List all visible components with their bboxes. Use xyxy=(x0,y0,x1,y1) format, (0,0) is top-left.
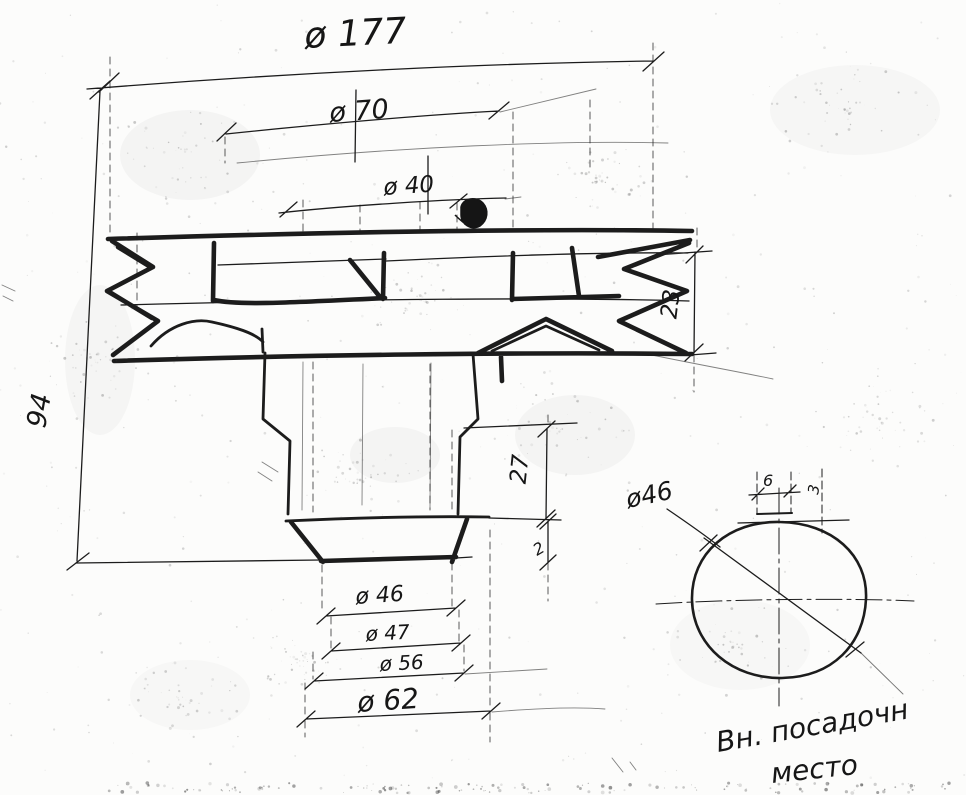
noise-dot xyxy=(725,277,727,279)
noise-dot xyxy=(117,127,119,129)
dim-overall-height: 94 xyxy=(21,391,57,430)
noise-dot xyxy=(303,656,306,659)
noise-dot xyxy=(146,667,147,668)
noise-dot xyxy=(363,787,365,789)
noise-dot xyxy=(819,93,821,95)
noise-dot xyxy=(928,349,930,351)
noise-dot xyxy=(674,397,676,399)
noise-dot xyxy=(580,312,583,315)
noise-dot xyxy=(176,355,179,358)
noise-dot xyxy=(547,787,551,791)
noise-dot xyxy=(133,159,134,160)
noise-dot xyxy=(188,272,190,274)
noise-dot xyxy=(477,82,479,84)
noise-dot xyxy=(922,689,924,691)
noise-dot xyxy=(343,792,344,793)
noise-dot xyxy=(177,178,179,180)
noise-dot xyxy=(932,419,935,422)
noise-dot xyxy=(177,684,179,686)
noise-dot xyxy=(377,197,380,200)
noise-dot xyxy=(144,165,146,167)
noise-dot xyxy=(538,540,540,542)
noise-dot xyxy=(337,466,340,469)
noise-dot xyxy=(725,632,726,633)
noise-dot xyxy=(419,312,422,315)
noise-dot xyxy=(748,662,749,663)
noise-dot xyxy=(247,229,249,231)
noise-dot xyxy=(826,782,830,786)
noise-dot xyxy=(199,112,201,114)
noise-dot xyxy=(835,133,838,136)
noise-dot xyxy=(882,685,884,687)
noise-dot xyxy=(854,74,855,75)
noise-dot xyxy=(338,452,339,453)
noise-dot xyxy=(697,358,698,359)
noise-dot xyxy=(370,485,371,486)
noise-dot xyxy=(826,112,828,114)
noise-dot xyxy=(135,367,137,369)
noise-dot xyxy=(272,191,274,193)
noise-dot xyxy=(294,645,295,646)
noise-dot xyxy=(848,128,851,131)
noise-dot xyxy=(532,403,534,405)
noise-dot xyxy=(186,148,188,150)
noise-dot xyxy=(914,785,915,786)
noise-dot xyxy=(147,760,150,763)
noise-dot xyxy=(565,475,566,476)
noise-dot xyxy=(44,121,46,123)
noise-dot xyxy=(193,789,194,790)
noise-dot xyxy=(185,715,186,716)
noise-dot xyxy=(896,465,899,468)
noise-dot xyxy=(178,690,180,692)
noise-dot xyxy=(917,440,919,442)
noise-dot xyxy=(303,666,304,667)
noise-dot xyxy=(579,787,582,790)
noise-dot xyxy=(882,438,883,439)
noise-dot xyxy=(803,101,805,103)
noise-dot xyxy=(366,765,367,766)
noise-dot xyxy=(234,789,236,791)
noise-dot xyxy=(731,646,734,649)
noise-dot xyxy=(19,384,21,386)
noise-dot xyxy=(300,602,301,603)
noise-dot xyxy=(102,143,103,144)
noise-dot xyxy=(190,112,191,113)
noise-dot xyxy=(820,82,822,84)
noise-dot xyxy=(285,651,287,653)
noise-dot xyxy=(76,417,79,420)
dim-end-dia-1: ø 46 xyxy=(354,582,405,610)
caption-line-1: Вн. посадочн xyxy=(713,693,910,759)
noise-dot xyxy=(95,370,96,371)
noise-dot xyxy=(56,345,58,347)
noise-dot xyxy=(0,102,1,104)
noise-dot xyxy=(230,681,231,682)
paper-smudges xyxy=(65,65,940,730)
noise-dot xyxy=(728,651,730,653)
noise-dot xyxy=(473,788,475,790)
noise-dot xyxy=(741,653,744,656)
noise-dot xyxy=(339,668,341,670)
noise-dot xyxy=(396,792,399,795)
noise-dot xyxy=(933,680,934,681)
noise-dot xyxy=(320,417,321,418)
noise-dot xyxy=(208,711,210,713)
noise-dot xyxy=(382,787,385,790)
noise-dot xyxy=(877,368,879,370)
noise-dot xyxy=(376,323,379,326)
noise-dot xyxy=(364,689,366,691)
noise-dot xyxy=(514,461,516,463)
noise-dot xyxy=(828,651,830,653)
noise-dot xyxy=(56,384,57,385)
noise-dot xyxy=(49,361,50,362)
noise-dot xyxy=(421,275,423,277)
noise-dot xyxy=(760,253,762,255)
noise-dot xyxy=(880,392,881,393)
noise-dot xyxy=(72,367,74,369)
noise-dot xyxy=(502,52,504,54)
noise-dot xyxy=(573,395,576,398)
noise-dot xyxy=(856,784,859,787)
dim-end-dia-4: ø 62 xyxy=(355,682,420,719)
noise-dot xyxy=(513,11,514,12)
noise-dot xyxy=(305,672,307,674)
noise-dot xyxy=(764,657,766,659)
noise-dot xyxy=(885,417,887,419)
noise-dot xyxy=(620,720,622,722)
noise-dot xyxy=(371,790,372,791)
noise-dot xyxy=(591,30,593,32)
noise-dot xyxy=(95,360,96,361)
noise-dot xyxy=(724,788,726,790)
noise-dot xyxy=(88,732,90,734)
noise-dot xyxy=(101,651,104,654)
noise-dot xyxy=(51,466,53,468)
noise-dot xyxy=(454,687,455,688)
noise-dot xyxy=(726,785,728,787)
noise-dot xyxy=(494,438,496,440)
noise-dot xyxy=(917,234,918,235)
noise-dot xyxy=(137,348,140,351)
noise-dot xyxy=(531,424,532,425)
noise-dot xyxy=(370,476,372,478)
noise-dot xyxy=(301,19,303,21)
noise-dot xyxy=(357,471,359,473)
noise-dot xyxy=(165,196,166,197)
noise-dot xyxy=(886,391,887,392)
noise-dot xyxy=(264,432,267,435)
noise-dot xyxy=(304,652,307,655)
noise-dot xyxy=(920,21,922,23)
noise-dot xyxy=(850,124,851,125)
noise-dot xyxy=(209,333,211,335)
noise-dot xyxy=(941,785,943,787)
noise-dot xyxy=(326,358,328,360)
noise-dot xyxy=(428,467,429,468)
noise-dot xyxy=(956,393,957,394)
noise-dot xyxy=(226,456,228,458)
noise-dot xyxy=(725,694,728,697)
noise-dot xyxy=(605,182,606,183)
noise-dot xyxy=(227,482,229,484)
noise-dot xyxy=(85,321,87,323)
noise-dot xyxy=(903,429,905,431)
noise-dot xyxy=(263,786,264,787)
noise-dot xyxy=(892,412,894,414)
noise-dot xyxy=(142,240,144,242)
noise-dot xyxy=(458,431,459,432)
noise-dot xyxy=(682,786,685,789)
noise-dot xyxy=(733,642,734,643)
noise-dot xyxy=(486,12,489,15)
noise-dot xyxy=(185,181,186,182)
noise-dot xyxy=(12,60,14,62)
noise-dot xyxy=(518,427,521,430)
noise-dot xyxy=(929,653,930,654)
noise-dot xyxy=(787,665,789,667)
noise-dot xyxy=(813,782,816,785)
noise-dot xyxy=(389,454,392,457)
noise-dot xyxy=(41,178,42,179)
noise-dot xyxy=(99,612,102,615)
noise-dot xyxy=(950,284,951,285)
noise-dot xyxy=(511,79,513,81)
noise-dot xyxy=(153,148,154,149)
noise-dot xyxy=(528,241,529,242)
noise-dot xyxy=(787,172,789,174)
noise-dot xyxy=(46,486,47,487)
noise-dot xyxy=(823,426,825,428)
noise-dot xyxy=(875,108,876,109)
noise-dot xyxy=(278,683,279,684)
noise-dot xyxy=(70,517,71,518)
noise-dot xyxy=(796,74,798,76)
noise-dot xyxy=(661,713,662,714)
noise-dot xyxy=(28,201,29,202)
noise-dot xyxy=(352,482,354,484)
noise-dot xyxy=(20,415,21,416)
noise-dot xyxy=(924,300,926,302)
noise-dot xyxy=(678,694,680,696)
noise-dot xyxy=(872,460,874,462)
noise-dot xyxy=(778,609,779,610)
noise-dot xyxy=(374,305,375,306)
noise-dot xyxy=(81,138,82,139)
noise-dot xyxy=(415,729,418,732)
noise-dot xyxy=(807,133,809,135)
noise-dot xyxy=(879,430,881,432)
noise-dot xyxy=(599,176,600,177)
noise-dot xyxy=(253,637,255,639)
noise-dot xyxy=(71,594,73,596)
noise-dot xyxy=(234,684,236,686)
noise-dot xyxy=(574,172,577,175)
noise-dot xyxy=(853,403,855,405)
noise-dot xyxy=(531,22,533,24)
noise-dot xyxy=(838,108,839,109)
noise-dot xyxy=(423,301,424,302)
noise-dot xyxy=(356,483,357,484)
noise-dot xyxy=(129,704,131,706)
noise-dot xyxy=(944,354,946,356)
noise-dot xyxy=(214,202,216,204)
noise-dot xyxy=(380,324,382,326)
noise-dot xyxy=(132,753,133,754)
noise-dot xyxy=(840,446,842,448)
noise-dot xyxy=(846,109,849,112)
dim-step-height: 27 xyxy=(506,453,535,485)
noise-dot xyxy=(577,692,578,693)
noise-dot xyxy=(318,682,319,683)
noise-dot xyxy=(372,245,373,246)
noise-dot xyxy=(169,564,172,567)
noise-dot xyxy=(326,675,327,676)
noise-dot xyxy=(481,786,483,788)
noise-dot xyxy=(137,699,140,702)
noise-dot xyxy=(437,264,440,267)
noise-dot xyxy=(588,171,590,173)
noise-dot xyxy=(349,468,352,471)
noise-dot xyxy=(221,789,223,791)
noise-dot xyxy=(848,430,850,432)
noise-dot xyxy=(870,666,872,668)
noise-dot xyxy=(467,715,468,716)
noise-dot xyxy=(216,106,218,108)
noise-dot xyxy=(609,786,613,790)
noise-dot xyxy=(776,103,778,105)
noise-dot xyxy=(148,399,149,400)
noise-dot xyxy=(641,311,642,312)
noise-dot xyxy=(57,507,59,509)
noise-dot xyxy=(136,791,139,794)
noise-dot xyxy=(340,124,342,126)
noise-dot xyxy=(763,607,765,609)
noise-dot xyxy=(829,105,830,106)
noise-dot xyxy=(495,198,497,200)
noise-dot xyxy=(432,112,434,114)
noise-dot xyxy=(100,359,101,360)
noise-dot xyxy=(144,131,145,132)
noise-dot xyxy=(0,389,1,391)
noise-dot xyxy=(866,410,868,412)
noise-dot xyxy=(185,667,187,669)
noise-dot xyxy=(9,703,11,705)
noise-dot xyxy=(523,786,526,789)
noise-dot xyxy=(601,159,604,162)
noise-dot xyxy=(628,430,630,432)
noise-dot xyxy=(52,213,53,214)
noise-dot xyxy=(539,693,542,696)
noise-dot xyxy=(804,649,806,651)
noise-dot xyxy=(191,151,192,152)
noise-dot xyxy=(843,416,845,418)
noise-dot xyxy=(814,82,817,85)
noise-dot xyxy=(226,783,229,786)
noise-dot xyxy=(623,637,625,639)
noise-dot xyxy=(558,21,560,23)
noise-dot xyxy=(866,581,867,582)
noise-dot xyxy=(830,509,831,510)
noise-dot xyxy=(549,431,550,432)
noise-dot xyxy=(730,642,731,643)
noise-dot xyxy=(623,789,625,791)
noise-dot xyxy=(588,783,589,784)
noise-dot xyxy=(163,785,166,788)
noise-dot xyxy=(588,457,589,458)
noise-dot xyxy=(409,473,410,474)
noise-dot xyxy=(361,315,364,318)
noise-dot xyxy=(87,724,89,726)
noise-dot xyxy=(427,787,430,790)
noise-dot xyxy=(397,474,399,476)
noise-dot xyxy=(585,276,586,277)
noise-dot xyxy=(914,91,917,94)
noise-dot xyxy=(923,440,925,442)
noise-dot xyxy=(339,460,340,461)
noise-dot xyxy=(442,677,444,679)
noise-dot xyxy=(540,91,543,94)
keyway-depth-label: 3 xyxy=(804,483,823,496)
noise-dot xyxy=(963,774,965,776)
noise-dot xyxy=(606,177,608,179)
noise-dot xyxy=(436,693,438,695)
noise-dot xyxy=(947,782,950,785)
noise-dot xyxy=(850,450,851,451)
noise-dot xyxy=(840,89,842,91)
noise-dot xyxy=(639,548,641,550)
noise-dot xyxy=(683,151,684,152)
noise-dot xyxy=(944,788,946,790)
noise-dot xyxy=(176,192,177,193)
noise-dot xyxy=(567,414,568,415)
noise-dot xyxy=(366,785,368,787)
noise-dot xyxy=(646,491,648,493)
noise-dot xyxy=(623,430,625,432)
noise-dot xyxy=(271,646,272,647)
noise-dot xyxy=(884,789,886,791)
noise-dot xyxy=(307,659,308,660)
noise-dot xyxy=(587,790,590,793)
noise-dot xyxy=(75,467,77,469)
noise-dot xyxy=(715,661,717,663)
noise-dot xyxy=(403,312,405,314)
noise-dot xyxy=(690,435,692,437)
noise-dot xyxy=(617,184,618,185)
noise-dot xyxy=(229,690,230,691)
noise-dot xyxy=(573,758,575,760)
noise-dot xyxy=(86,260,89,263)
noise-dot xyxy=(75,343,77,345)
noise-dot xyxy=(867,407,868,408)
noise-dot xyxy=(879,427,880,428)
noise-dot xyxy=(307,320,309,322)
noise-dot xyxy=(88,360,89,361)
noise-dot xyxy=(83,349,86,352)
noise-dot xyxy=(177,697,178,698)
noise-dot xyxy=(97,362,99,364)
noise-dot xyxy=(738,631,741,634)
noise-dot xyxy=(166,57,168,59)
noise-dot xyxy=(850,791,854,795)
noise-dot xyxy=(345,479,346,480)
noise-dot xyxy=(292,656,295,659)
noise-dot xyxy=(303,183,305,185)
noise-dot xyxy=(740,647,742,649)
noise-dot xyxy=(304,679,305,680)
noise-dot xyxy=(349,481,351,483)
